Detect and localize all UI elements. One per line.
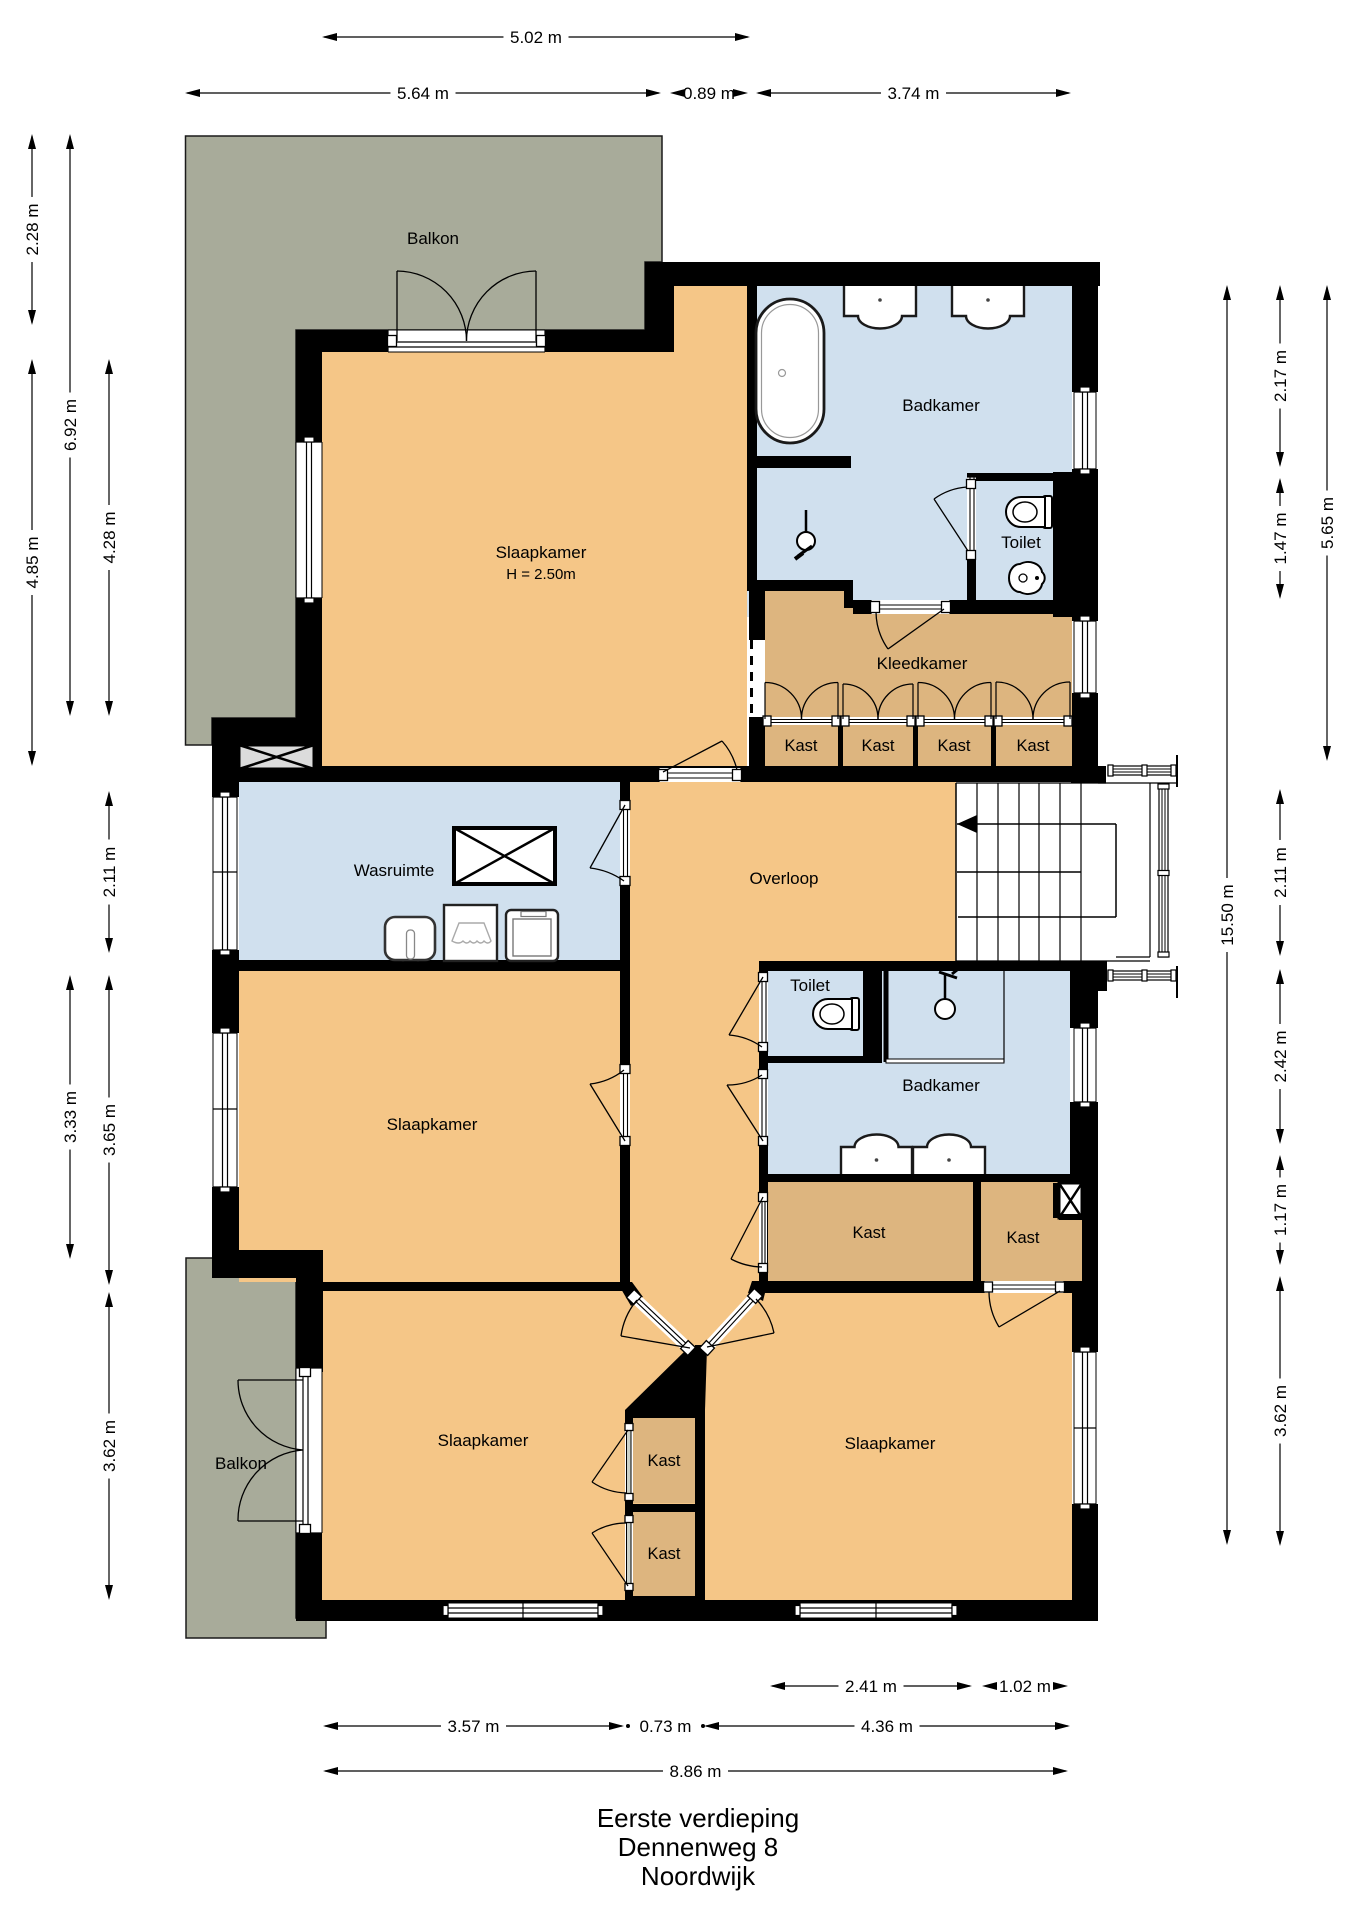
svg-text:3.33 m: 3.33 m xyxy=(61,1091,80,1143)
svg-text:2.17 m: 2.17 m xyxy=(1271,350,1290,402)
svg-text:8.86 m: 8.86 m xyxy=(670,1762,722,1781)
svg-text:15.50 m: 15.50 m xyxy=(1218,884,1237,945)
svg-text:2.42 m: 2.42 m xyxy=(1271,1031,1290,1083)
svg-text:Kleedkamer: Kleedkamer xyxy=(877,654,968,673)
svg-text:4.36 m: 4.36 m xyxy=(861,1717,913,1736)
svg-text:Kast: Kast xyxy=(852,1224,885,1242)
svg-text:6.92 m: 6.92 m xyxy=(61,399,80,451)
svg-text:Kast: Kast xyxy=(647,1545,680,1563)
svg-text:4.85 m: 4.85 m xyxy=(23,537,42,589)
svg-text:Kast: Kast xyxy=(1016,737,1049,755)
svg-text:5.02 m: 5.02 m xyxy=(510,28,562,47)
svg-text:Overloop: Overloop xyxy=(750,869,819,888)
svg-text:Noordwijk: Noordwijk xyxy=(641,1861,756,1891)
svg-text:Kast: Kast xyxy=(647,1452,680,1470)
svg-text:1.17 m: 1.17 m xyxy=(1271,1184,1290,1236)
svg-text:4.28 m: 4.28 m xyxy=(100,512,119,564)
svg-text:Slaapkamer: Slaapkamer xyxy=(496,543,587,562)
svg-text:5.64 m: 5.64 m xyxy=(397,84,449,103)
svg-text:2.28 m: 2.28 m xyxy=(23,204,42,256)
svg-text:0.89 m: 0.89 m xyxy=(683,84,735,103)
svg-text:Toilet: Toilet xyxy=(790,976,830,995)
svg-text:Wasruimte: Wasruimte xyxy=(354,861,435,880)
svg-text:3.57 m: 3.57 m xyxy=(448,1717,500,1736)
svg-text:2.11 m: 2.11 m xyxy=(100,847,119,898)
svg-text:5.65 m: 5.65 m xyxy=(1318,497,1337,549)
svg-text:1.02 m: 1.02 m xyxy=(999,1677,1051,1696)
svg-text:H = 2.50m: H = 2.50m xyxy=(506,566,576,583)
svg-text:Badkamer: Badkamer xyxy=(902,396,980,415)
svg-text:Kast: Kast xyxy=(861,737,894,755)
svg-text:Kast: Kast xyxy=(784,737,817,755)
svg-text:Slaapkamer: Slaapkamer xyxy=(387,1115,478,1134)
svg-text:2.11 m: 2.11 m xyxy=(1271,847,1290,898)
svg-text:Badkamer: Badkamer xyxy=(902,1076,980,1095)
svg-text:0.73 m: 0.73 m xyxy=(640,1717,692,1736)
svg-text:1.47 m: 1.47 m xyxy=(1271,513,1290,565)
svg-text:Slaapkamer: Slaapkamer xyxy=(845,1434,936,1453)
svg-text:Balkon: Balkon xyxy=(215,1454,267,1473)
svg-text:3.62 m: 3.62 m xyxy=(100,1420,119,1472)
svg-text:Dennenweg 8: Dennenweg 8 xyxy=(618,1832,778,1862)
svg-text:Toilet: Toilet xyxy=(1001,533,1041,552)
svg-text:Slaapkamer: Slaapkamer xyxy=(438,1431,529,1450)
svg-text:Kast: Kast xyxy=(937,737,970,755)
svg-text:Eerste verdieping: Eerste verdieping xyxy=(597,1803,799,1833)
svg-text:3.74 m: 3.74 m xyxy=(888,84,940,103)
svg-text:Kast: Kast xyxy=(1006,1229,1039,1247)
svg-text:3.65 m: 3.65 m xyxy=(100,1104,119,1156)
svg-text:2.41 m: 2.41 m xyxy=(845,1677,897,1696)
svg-text:Balkon: Balkon xyxy=(407,229,459,248)
svg-text:3.62 m: 3.62 m xyxy=(1271,1385,1290,1437)
